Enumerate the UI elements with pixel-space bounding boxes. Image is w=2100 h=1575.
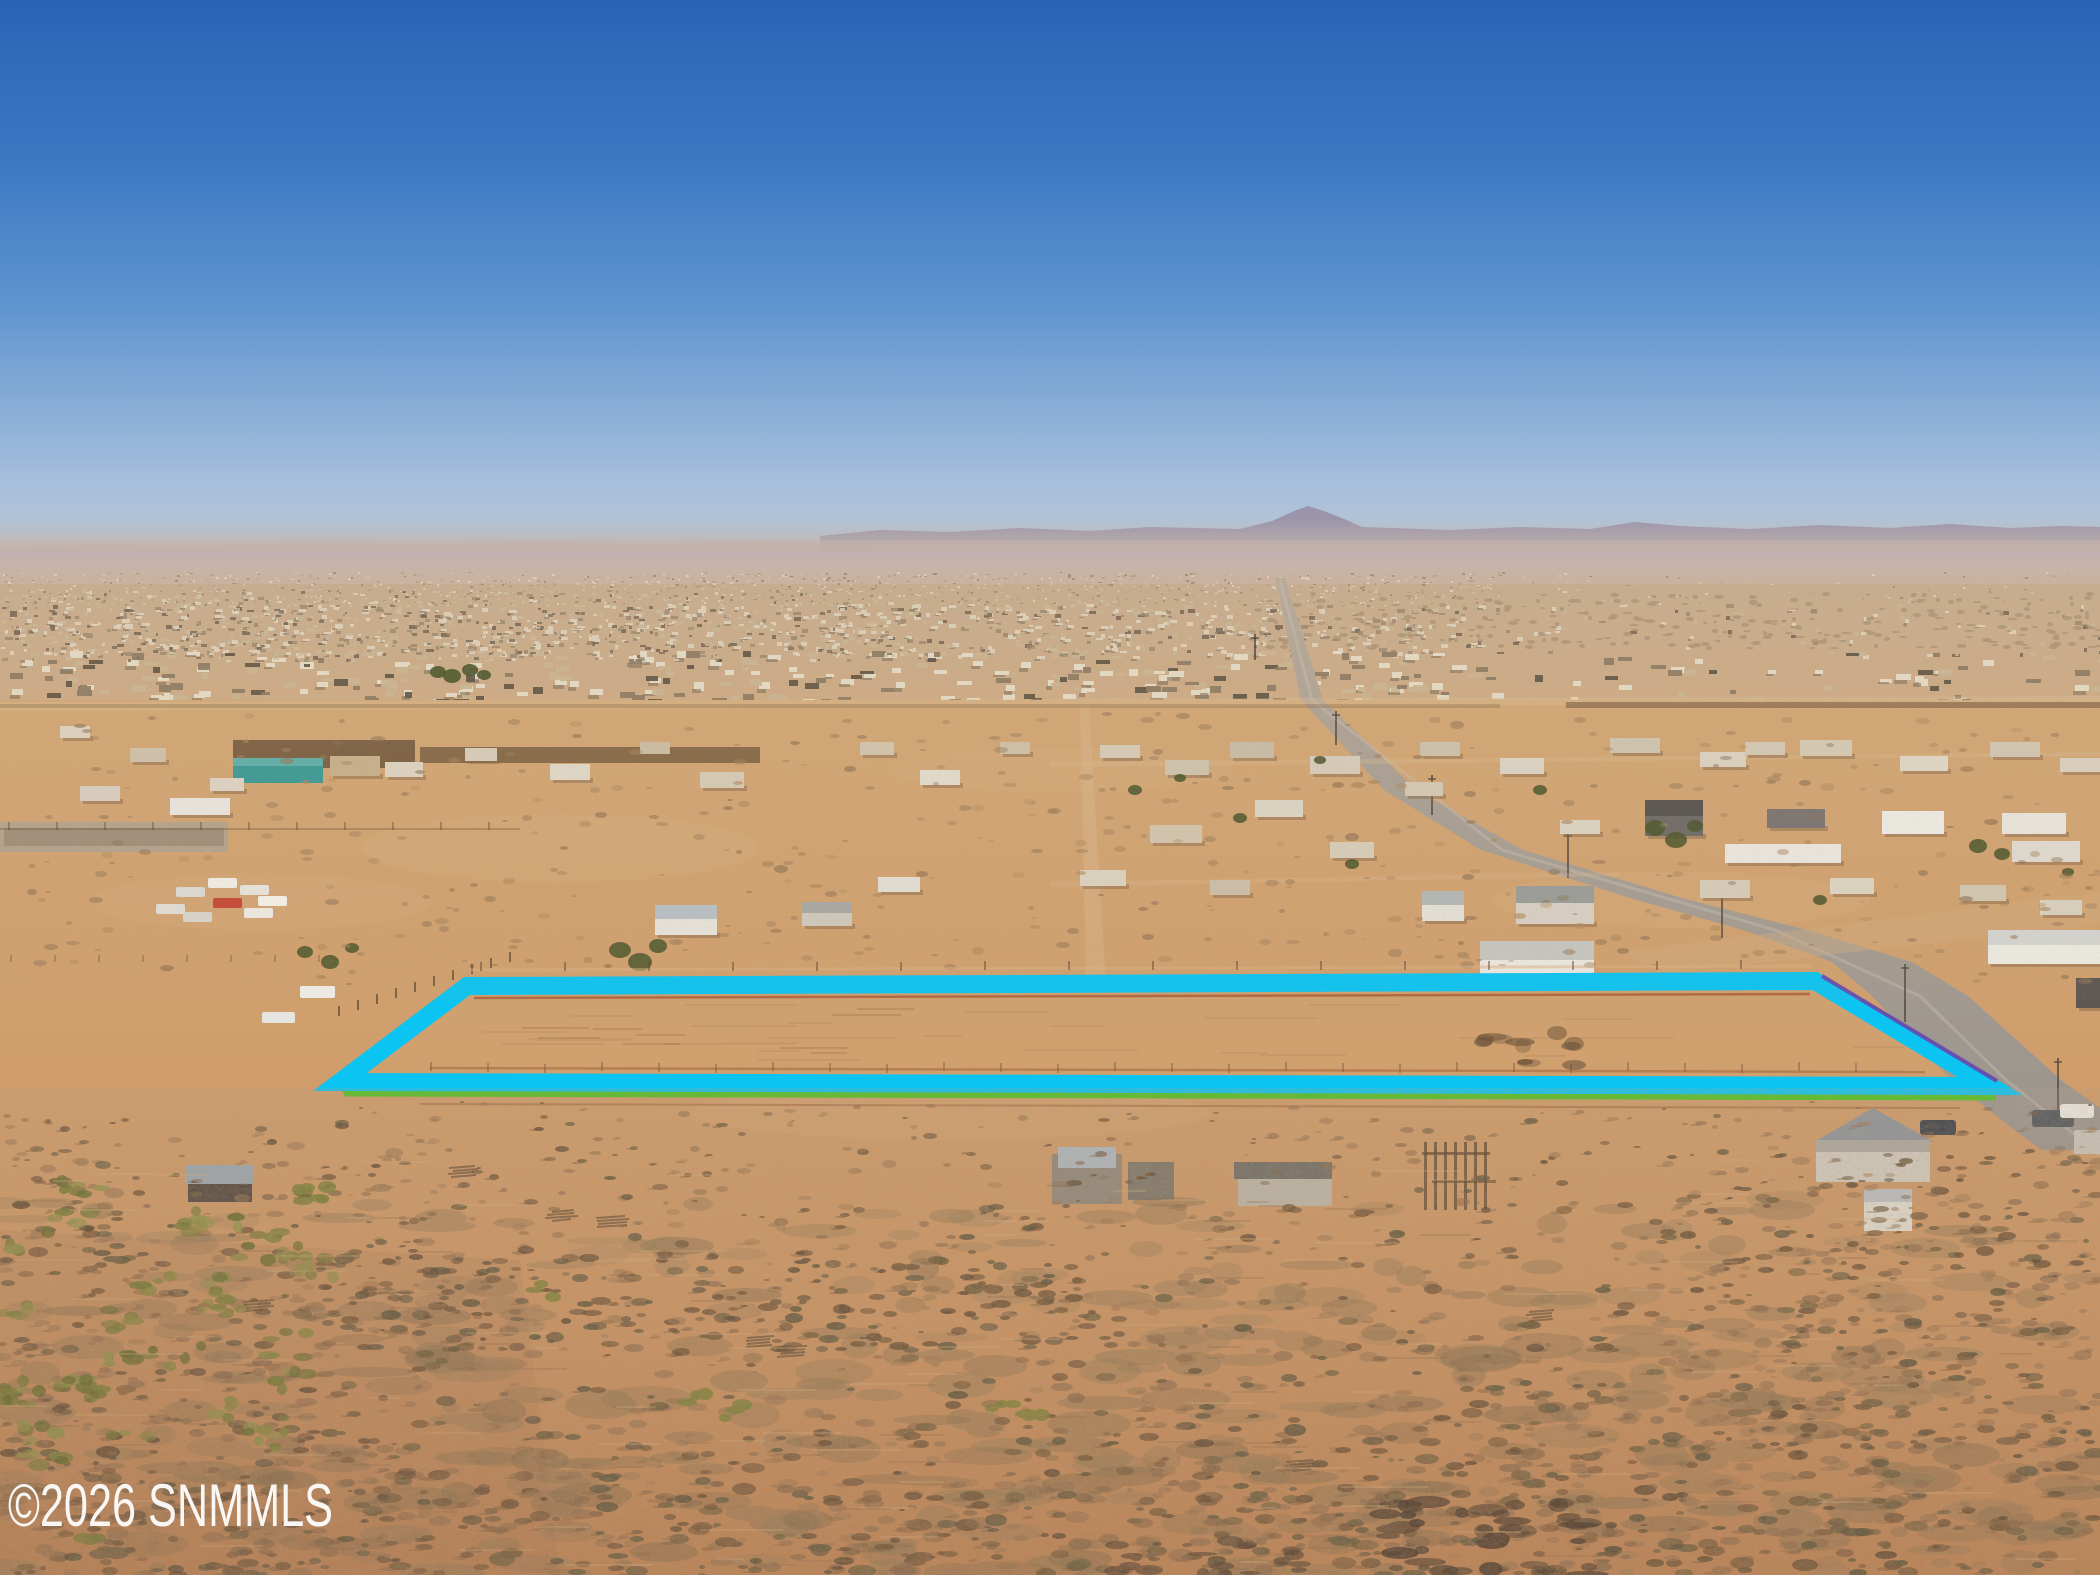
svg-text:©2026 SNMMLS: ©2026 SNMMLS (8, 1472, 333, 1539)
